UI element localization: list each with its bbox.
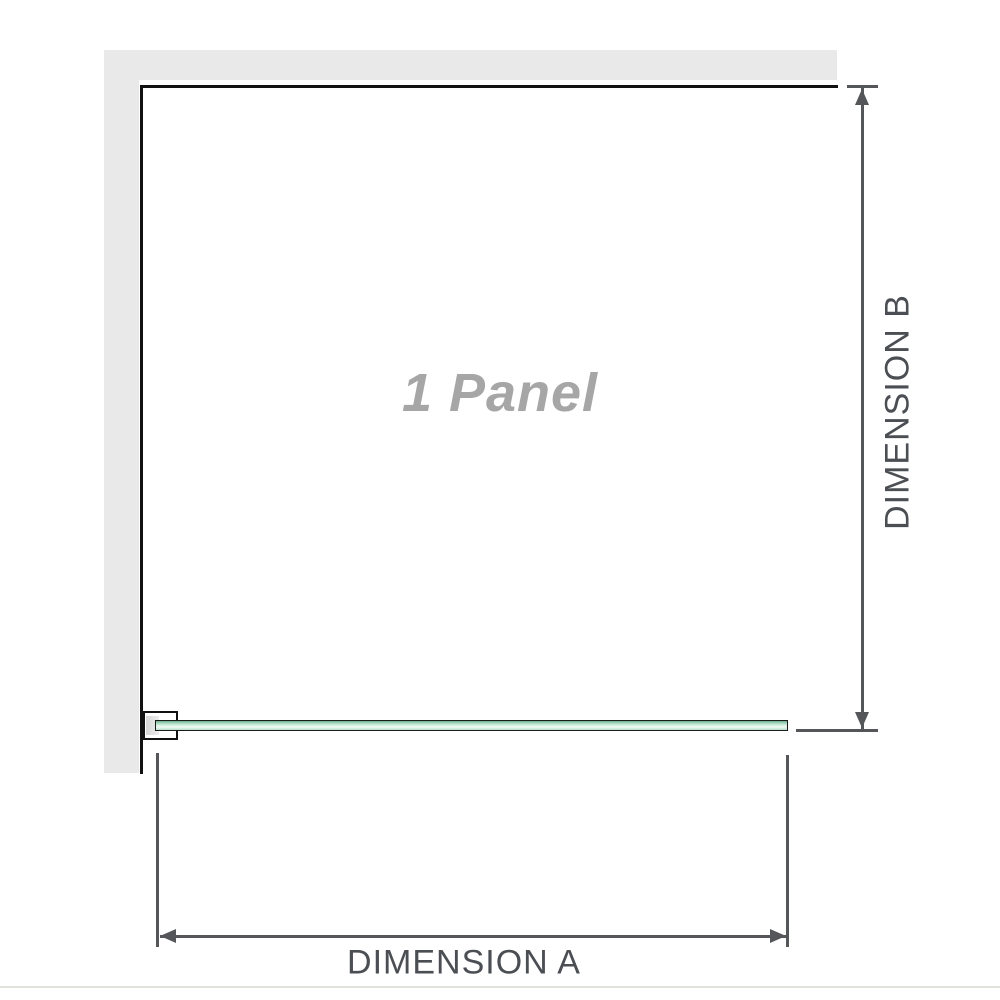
dimension-a-extension-left xyxy=(156,753,159,947)
dimension-b-line xyxy=(861,88,864,731)
arrow-left-icon xyxy=(160,929,176,943)
dimension-b-tick-top xyxy=(847,85,878,88)
panel-left-edge xyxy=(140,85,143,774)
dimension-a-line xyxy=(160,935,786,938)
wall-left xyxy=(104,50,139,773)
panel-top-edge xyxy=(140,85,838,88)
arrow-up-icon xyxy=(855,89,869,105)
glass-panel xyxy=(155,720,788,731)
dimension-a-label: DIMENSION A xyxy=(347,944,581,983)
dimension-b-label: DIMENSION B xyxy=(879,294,918,530)
arrow-right-icon xyxy=(770,929,786,943)
panel-label: 1 Panel xyxy=(350,362,650,424)
dimension-b-tick-bottom xyxy=(796,729,878,732)
arrow-down-icon xyxy=(855,712,869,728)
wall-top xyxy=(104,50,837,80)
footer-divider xyxy=(0,986,1000,988)
dimension-a-extension-right xyxy=(786,755,789,947)
diagram-canvas: 1 Panel DIMENSION B DIMENSION A xyxy=(0,0,1000,1000)
